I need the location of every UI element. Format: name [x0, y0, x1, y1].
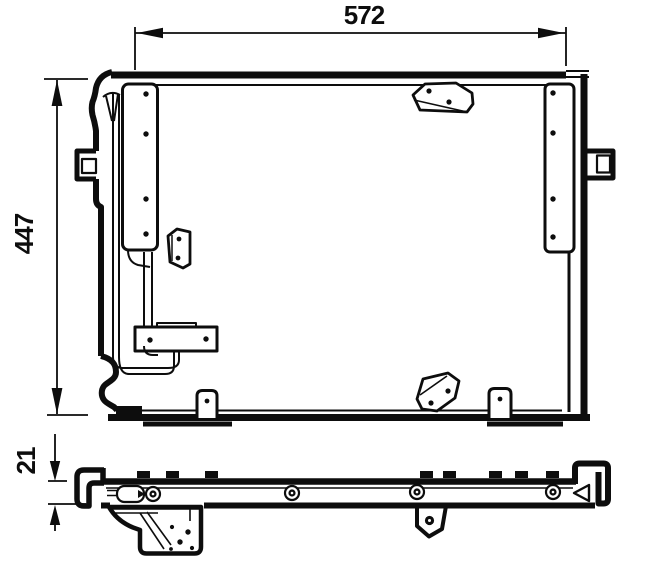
- arrowhead-left: [137, 28, 163, 38]
- bracket-top-outline: [413, 83, 473, 112]
- bracket-hole: [176, 256, 181, 261]
- screw-center: [416, 491, 419, 494]
- rivet-hole: [550, 90, 555, 95]
- rivet-hole: [550, 130, 555, 135]
- bracket-hole-center: [428, 519, 431, 522]
- dimension-height-label: 447: [9, 213, 39, 254]
- condenser-technical-drawing: 572 447: [0, 0, 650, 578]
- bottom-profile-view: 21: [11, 434, 608, 554]
- bracket-hole: [169, 547, 173, 551]
- pipe-bracket: [135, 323, 217, 351]
- right-plate: [545, 84, 574, 252]
- bracket-hole: [185, 529, 190, 534]
- profile-bracket-left: [109, 507, 201, 554]
- bracket-hole: [170, 525, 174, 529]
- bracket-hole: [203, 336, 208, 341]
- bracket-hole: [177, 539, 182, 544]
- arrowhead-down: [52, 388, 63, 414]
- profile-bracket-middle: [417, 506, 446, 537]
- left-mounting-plate: [123, 84, 158, 250]
- rivet-hole: [143, 131, 148, 136]
- bracket-hole: [190, 546, 194, 550]
- profile-end-fitting: [574, 485, 589, 501]
- bracket-hole: [147, 337, 152, 342]
- drawing-canvas: 572 447: [0, 0, 650, 578]
- pipe-outlet-block: [116, 406, 142, 421]
- rivet-hole: [143, 196, 148, 201]
- foot-tab-outline: [197, 391, 217, 419]
- front-view: 572 447: [9, 0, 613, 424]
- right-connector-tab: [585, 151, 613, 178]
- bracket-hole: [426, 88, 431, 93]
- dimension-thickness-label: 21: [11, 447, 41, 474]
- dimension-width-lines: [135, 27, 566, 70]
- rivet-hole: [550, 234, 555, 239]
- left-plate: [123, 84, 158, 250]
- tab-hole: [205, 399, 210, 404]
- bracket-hole: [177, 237, 182, 242]
- foot-tab-left: [197, 391, 217, 419]
- arrowhead-right: [538, 28, 564, 38]
- bracket-hole: [428, 400, 433, 405]
- bracket-left-middle: [168, 229, 190, 268]
- screw-center: [552, 491, 555, 494]
- right-connector-port: [597, 156, 610, 173]
- frame-thin-lines: [128, 71, 589, 411]
- left-connector-tab: [77, 151, 96, 179]
- bracket-hole: [446, 99, 451, 104]
- tab-hole: [498, 397, 503, 402]
- screw-center: [291, 492, 294, 495]
- bracket-top-middle: [413, 83, 473, 112]
- dimension-height-lines: [44, 79, 88, 415]
- screw-center: [152, 493, 155, 496]
- right-mounting-plate: [545, 84, 574, 252]
- foot-tab-right: [489, 389, 511, 419]
- left-connector-port: [82, 159, 96, 173]
- rivet-hole: [143, 231, 148, 236]
- bracket-hole: [445, 388, 450, 393]
- dimension-width-label: 572: [344, 0, 385, 30]
- arrowhead-down: [50, 461, 60, 481]
- rivet-hole: [550, 196, 555, 201]
- arrowhead-up: [50, 505, 60, 525]
- rivet-hole: [143, 91, 148, 96]
- foot-tab-outline: [489, 389, 511, 419]
- dimension-width: 572: [135, 0, 566, 70]
- dimension-height: 447: [9, 79, 88, 415]
- bracket-bottom-right: [417, 373, 459, 411]
- arrowhead-up: [52, 80, 63, 106]
- profile-left-hook: [77, 468, 104, 506]
